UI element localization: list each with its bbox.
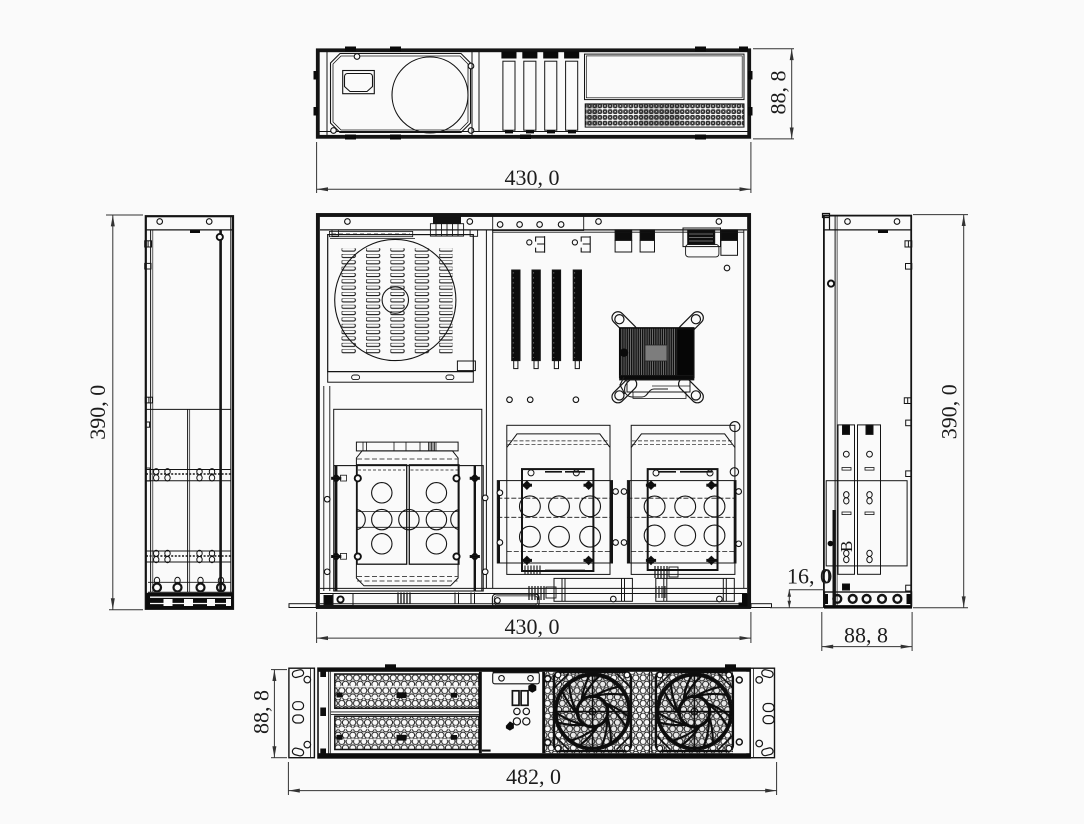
svg-text:430, 0: 430, 0	[505, 165, 560, 190]
svg-text:482, 0: 482, 0	[506, 764, 561, 789]
svg-text:88, 8: 88, 8	[844, 623, 888, 648]
svg-text:390, 0: 390, 0	[937, 384, 962, 439]
svg-text:430, 0: 430, 0	[505, 614, 560, 639]
svg-text:390, 0: 390, 0	[85, 385, 110, 440]
svg-text:88, 8: 88, 8	[766, 71, 791, 115]
svg-text:88, 8: 88, 8	[249, 690, 274, 734]
svg-text:16, 0: 16, 0	[787, 564, 831, 589]
svg-text:B: B	[837, 541, 856, 552]
